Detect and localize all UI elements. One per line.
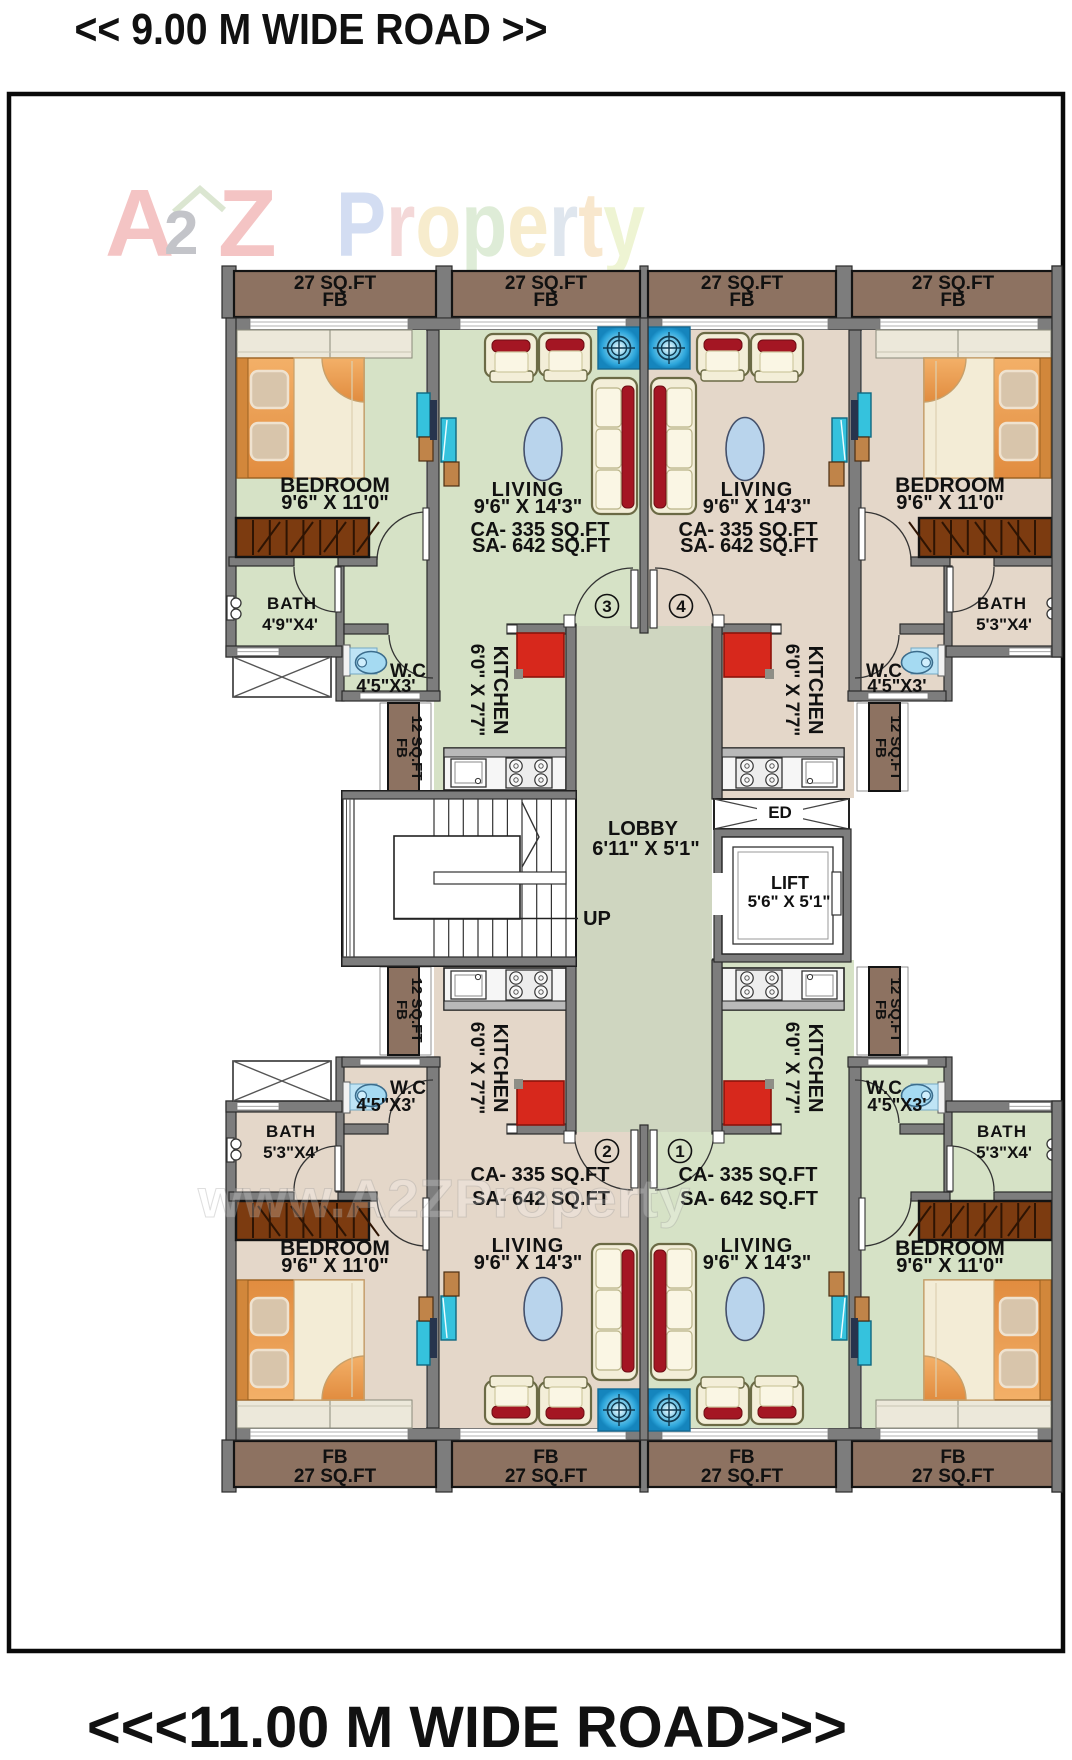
- svg-text:FB: FB: [872, 1000, 889, 1020]
- svg-text:FB: FB: [940, 290, 965, 311]
- svg-text:6'0" X 7'7": 6'0" X 7'7": [781, 1022, 802, 1115]
- svg-text:6'0" X 7'7": 6'0" X 7'7": [781, 644, 802, 737]
- svg-text:UP: UP: [583, 908, 611, 930]
- svg-text:LOBBY: LOBBY: [608, 818, 679, 840]
- svg-text:4'5"X3': 4'5"X3': [867, 676, 926, 696]
- svg-text:FB: FB: [872, 738, 889, 758]
- svg-text:4'9"X4': 4'9"X4': [262, 615, 318, 634]
- svg-text:9'6" X 11'0": 9'6" X 11'0": [281, 492, 388, 514]
- svg-text:27 SQ.FT: 27 SQ.FT: [912, 1466, 995, 1487]
- svg-text:27 SQ.FT: 27 SQ.FT: [505, 1466, 588, 1487]
- svg-text:3: 3: [602, 597, 611, 616]
- svg-text:Z: Z: [218, 170, 277, 277]
- svg-text:FB: FB: [729, 1447, 754, 1468]
- svg-text:<< 9.00 M WIDE ROAD >>: << 9.00 M WIDE ROAD >>: [75, 5, 548, 54]
- svg-text:2: 2: [164, 199, 198, 268]
- svg-text:FB: FB: [940, 1447, 965, 1468]
- svg-text:4'5"X3': 4'5"X3': [867, 1095, 926, 1115]
- svg-text:SA- 642 SQ.FT: SA- 642 SQ.FT: [680, 1188, 818, 1210]
- svg-text:FB: FB: [729, 290, 754, 311]
- svg-text:9'6" X 14'3": 9'6" X 14'3": [703, 1252, 812, 1274]
- svg-text:LIFT: LIFT: [771, 873, 809, 893]
- svg-text:6'11" X 5'1": 6'11" X 5'1": [592, 838, 699, 860]
- svg-text:<<<11.00 M WIDE ROAD>>>: <<<11.00 M WIDE ROAD>>>: [87, 1695, 847, 1760]
- svg-text:5'3"X4': 5'3"X4': [976, 1143, 1032, 1162]
- svg-text:FB: FB: [393, 738, 410, 758]
- svg-text:FB: FB: [393, 1000, 410, 1020]
- svg-text:9'6" X 11'0": 9'6" X 11'0": [896, 492, 1003, 514]
- svg-text:4: 4: [676, 597, 686, 616]
- svg-text:FB: FB: [322, 290, 347, 311]
- svg-text:9'6" X 14'3": 9'6" X 14'3": [474, 496, 583, 518]
- svg-text:CA- 335 SQ.FT: CA- 335 SQ.FT: [679, 1164, 818, 1186]
- svg-text:27 SQ.FT: 27 SQ.FT: [701, 1466, 784, 1487]
- svg-text:KITCHEN: KITCHEN: [489, 646, 511, 735]
- svg-text:9'6" X 11'0": 9'6" X 11'0": [281, 1255, 388, 1277]
- svg-text:9'6" X 14'3": 9'6" X 14'3": [703, 496, 812, 518]
- svg-text:KITCHEN: KITCHEN: [489, 1024, 511, 1113]
- svg-text:6'0" X 7'7": 6'0" X 7'7": [466, 644, 487, 737]
- svg-text:5'3"X4': 5'3"X4': [976, 615, 1032, 634]
- svg-text:BATH: BATH: [977, 1122, 1027, 1141]
- svg-text:9'6" X 11'0": 9'6" X 11'0": [896, 1255, 1003, 1277]
- svg-text:KITCHEN: KITCHEN: [804, 1024, 826, 1113]
- svg-text:6'0" X 7'7": 6'0" X 7'7": [466, 1022, 487, 1115]
- svg-text:FB: FB: [322, 1447, 347, 1468]
- svg-text:4'5"X3': 4'5"X3': [356, 676, 415, 696]
- svg-text:BATH: BATH: [977, 594, 1027, 613]
- svg-text:9'6" X 14'3": 9'6" X 14'3": [474, 1252, 583, 1274]
- svg-text:FB: FB: [533, 1447, 558, 1468]
- svg-text:4'5"X3': 4'5"X3': [356, 1095, 415, 1115]
- svg-text:SA- 642 SQ.FT: SA- 642 SQ.FT: [472, 535, 610, 557]
- svg-text:www.A2ZProperty: www.A2ZProperty: [197, 1169, 690, 1229]
- svg-text:2: 2: [602, 1142, 611, 1161]
- svg-text:ED: ED: [768, 803, 792, 822]
- svg-text:BATH: BATH: [266, 1122, 316, 1141]
- svg-text:SA- 642 SQ.FT: SA- 642 SQ.FT: [680, 535, 818, 557]
- svg-text:27 SQ.FT: 27 SQ.FT: [294, 1466, 377, 1487]
- svg-text:5'3"X4': 5'3"X4': [263, 1143, 319, 1162]
- svg-text:5'6" X 5'1": 5'6" X 5'1": [748, 892, 831, 911]
- svg-text:KITCHEN: KITCHEN: [804, 646, 826, 735]
- svg-text:FB: FB: [533, 290, 558, 311]
- svg-text:1: 1: [675, 1142, 684, 1161]
- svg-text:BATH: BATH: [267, 594, 317, 613]
- svg-text:Property: Property: [336, 174, 645, 276]
